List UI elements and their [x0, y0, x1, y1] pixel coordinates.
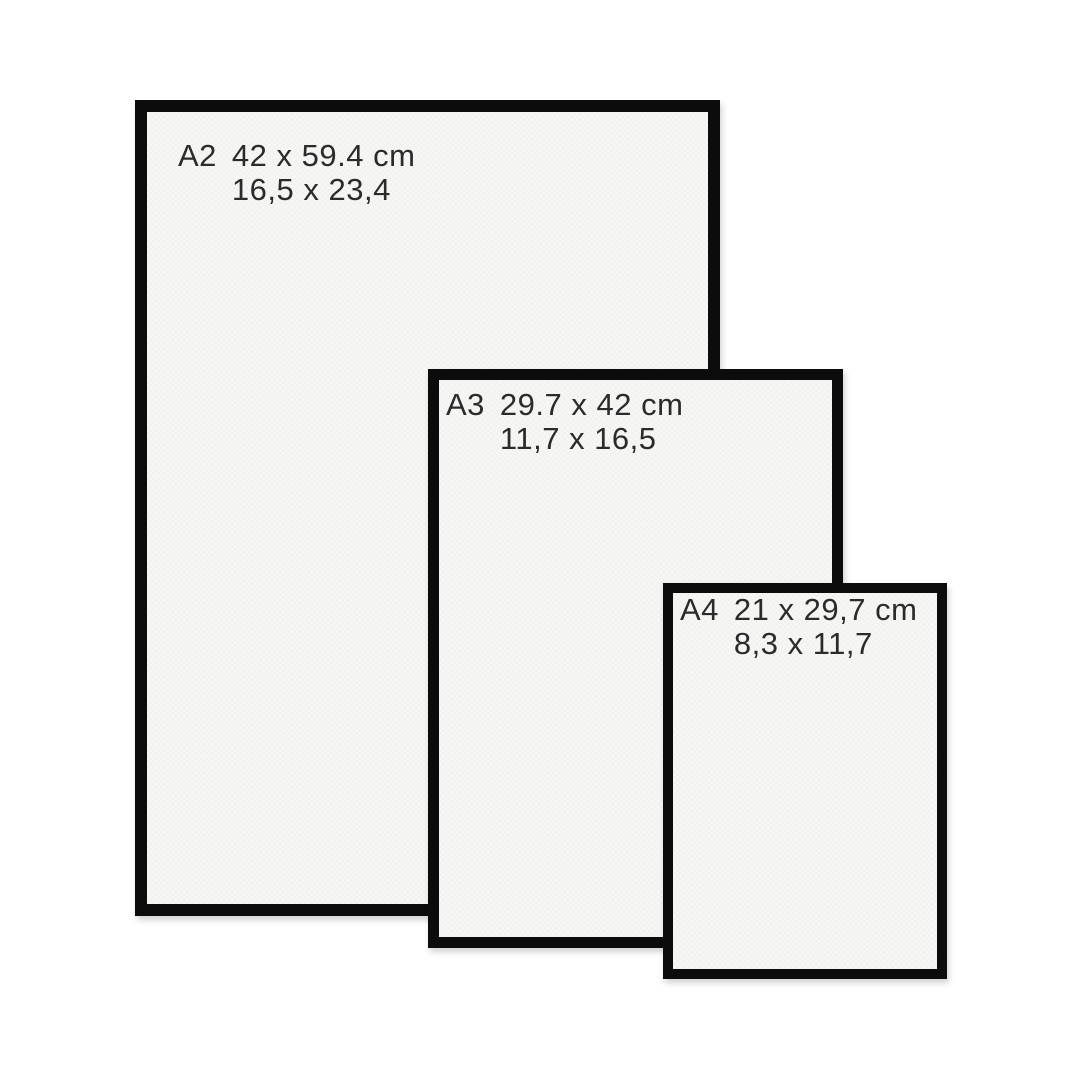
size-inches: 8,3 x 11,7: [734, 627, 873, 661]
size-label-a4: A4 21 x 29,7 cm 8,3 x 11,7: [680, 593, 917, 661]
size-cm: 42 x 59.4 cm: [232, 139, 415, 173]
size-cm: 29.7 x 42 cm: [500, 388, 683, 422]
size-inches: 16,5 x 23,4: [232, 173, 391, 207]
size-label-a3: A3 29.7 x 42 cm 11,7 x 16,5: [446, 388, 683, 456]
size-code: A2: [178, 139, 217, 173]
size-label-a2: A2 42 x 59.4 cm 16,5 x 23,4: [178, 139, 415, 207]
size-code: A4: [680, 593, 719, 627]
size-inches: 11,7 x 16,5: [500, 422, 657, 456]
size-code: A3: [446, 388, 485, 422]
size-comparison-diagram: A2 42 x 59.4 cm 16,5 x 23,4 A3 29.7 x 42…: [0, 0, 1080, 1080]
size-cm: 21 x 29,7 cm: [734, 593, 917, 627]
